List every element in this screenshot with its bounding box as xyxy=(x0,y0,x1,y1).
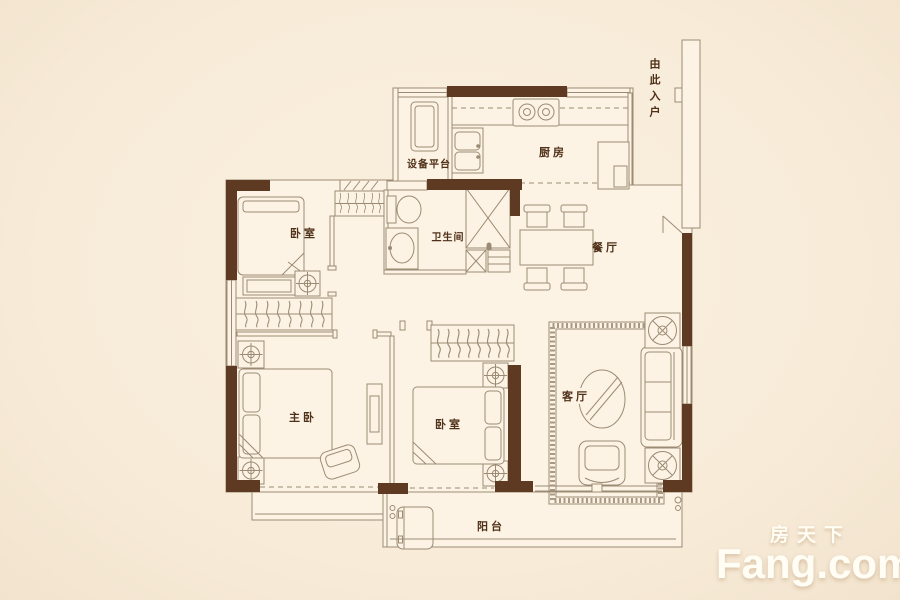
room-label-kitchen: 厨房 xyxy=(539,144,567,160)
armchair xyxy=(579,441,625,485)
plant-top xyxy=(645,313,680,348)
bathroom-basin xyxy=(386,228,418,269)
nightstand-master-top xyxy=(238,341,264,368)
wardrobe-south xyxy=(431,325,514,361)
room-label-bathroom: 卫生间 xyxy=(432,229,465,244)
entry-corridor xyxy=(682,40,700,228)
room-label-bedroom-south: 卧室 xyxy=(435,416,463,432)
water-heater xyxy=(411,102,438,151)
floor-plan-drawing xyxy=(0,0,900,600)
room-label-living-room: 客厅 xyxy=(560,388,592,404)
washing-machine xyxy=(397,507,433,549)
room-label-dining: 餐厅 xyxy=(592,239,620,255)
stove xyxy=(513,99,559,126)
bed-master xyxy=(239,369,332,458)
shower-shaft xyxy=(466,188,510,272)
nightstand-north xyxy=(295,271,320,296)
room-label-bedroom-north: 卧室 xyxy=(290,225,318,241)
fang-watermark: 房天下 Fang.com xyxy=(712,518,898,596)
bed-bench xyxy=(243,277,295,295)
plant-bottom xyxy=(645,448,680,483)
watermark-brand-en: Fang.com xyxy=(716,540,900,588)
nightstand-master-bottom xyxy=(238,457,264,484)
hall-closet xyxy=(236,298,332,330)
wardrobe-north xyxy=(335,191,384,216)
floorplan-screenshot: 设备平台 厨房 卧室 卫生间 餐厅 主卧 卧室 客厅 阳台 由此入户 房天下 F… xyxy=(0,0,900,600)
entry-direction-label: 由此入户 xyxy=(646,58,662,122)
bay-window xyxy=(252,492,383,520)
room-label-balcony: 阳台 xyxy=(477,518,505,534)
toilet xyxy=(387,196,421,223)
room-label-master-bedroom: 主卧 xyxy=(289,409,317,425)
room-label-equipment-platform: 设备平台 xyxy=(407,156,451,171)
tv-cabinet xyxy=(367,384,382,444)
kitchen-sink xyxy=(452,128,483,173)
fridge xyxy=(598,142,629,189)
sofa xyxy=(641,347,682,447)
nightstand-south-top xyxy=(483,363,508,388)
